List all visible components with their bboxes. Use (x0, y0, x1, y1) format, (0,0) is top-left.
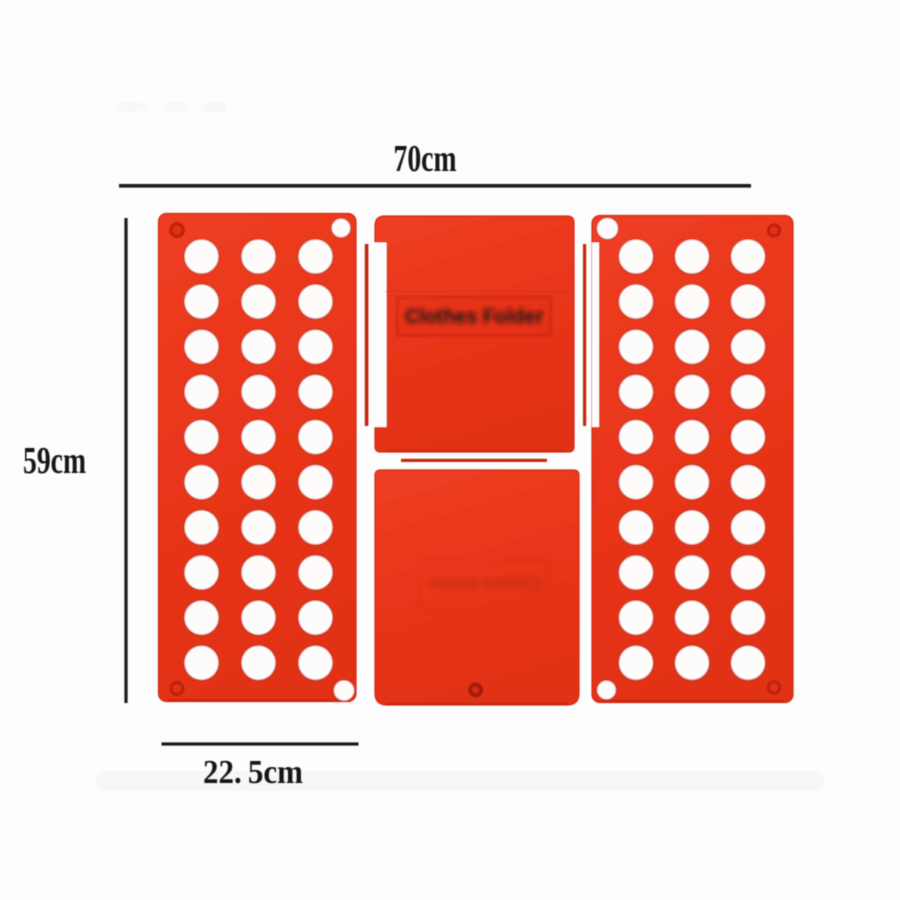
svg-text:Clothes Folder: Clothes Folder (428, 574, 540, 593)
svg-text:Clothes Folder: Clothes Folder (405, 306, 543, 328)
svg-text:59cm: 59cm (23, 440, 86, 482)
svg-text:70cm: 70cm (394, 138, 457, 180)
svg-text:22. 5cm: 22. 5cm (203, 754, 303, 791)
